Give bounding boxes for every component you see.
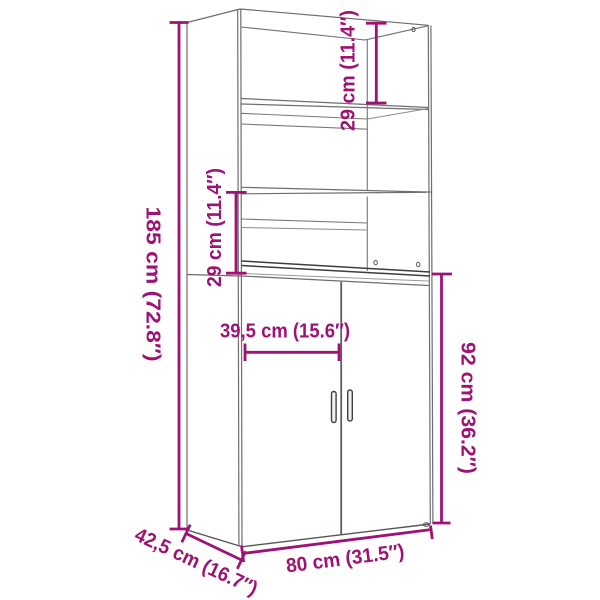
svg-text:39,5 cm (15.6″): 39,5 cm (15.6″): [220, 321, 350, 343]
svg-text:29 cm (11.4″): 29 cm (11.4″): [204, 168, 226, 287]
svg-text:185 cm (72.8″): 185 cm (72.8″): [141, 207, 163, 362]
svg-text:29 cm (11.4″): 29 cm (11.4″): [338, 10, 360, 131]
svg-text:92 cm (36.2″): 92 cm (36.2″): [457, 342, 479, 474]
